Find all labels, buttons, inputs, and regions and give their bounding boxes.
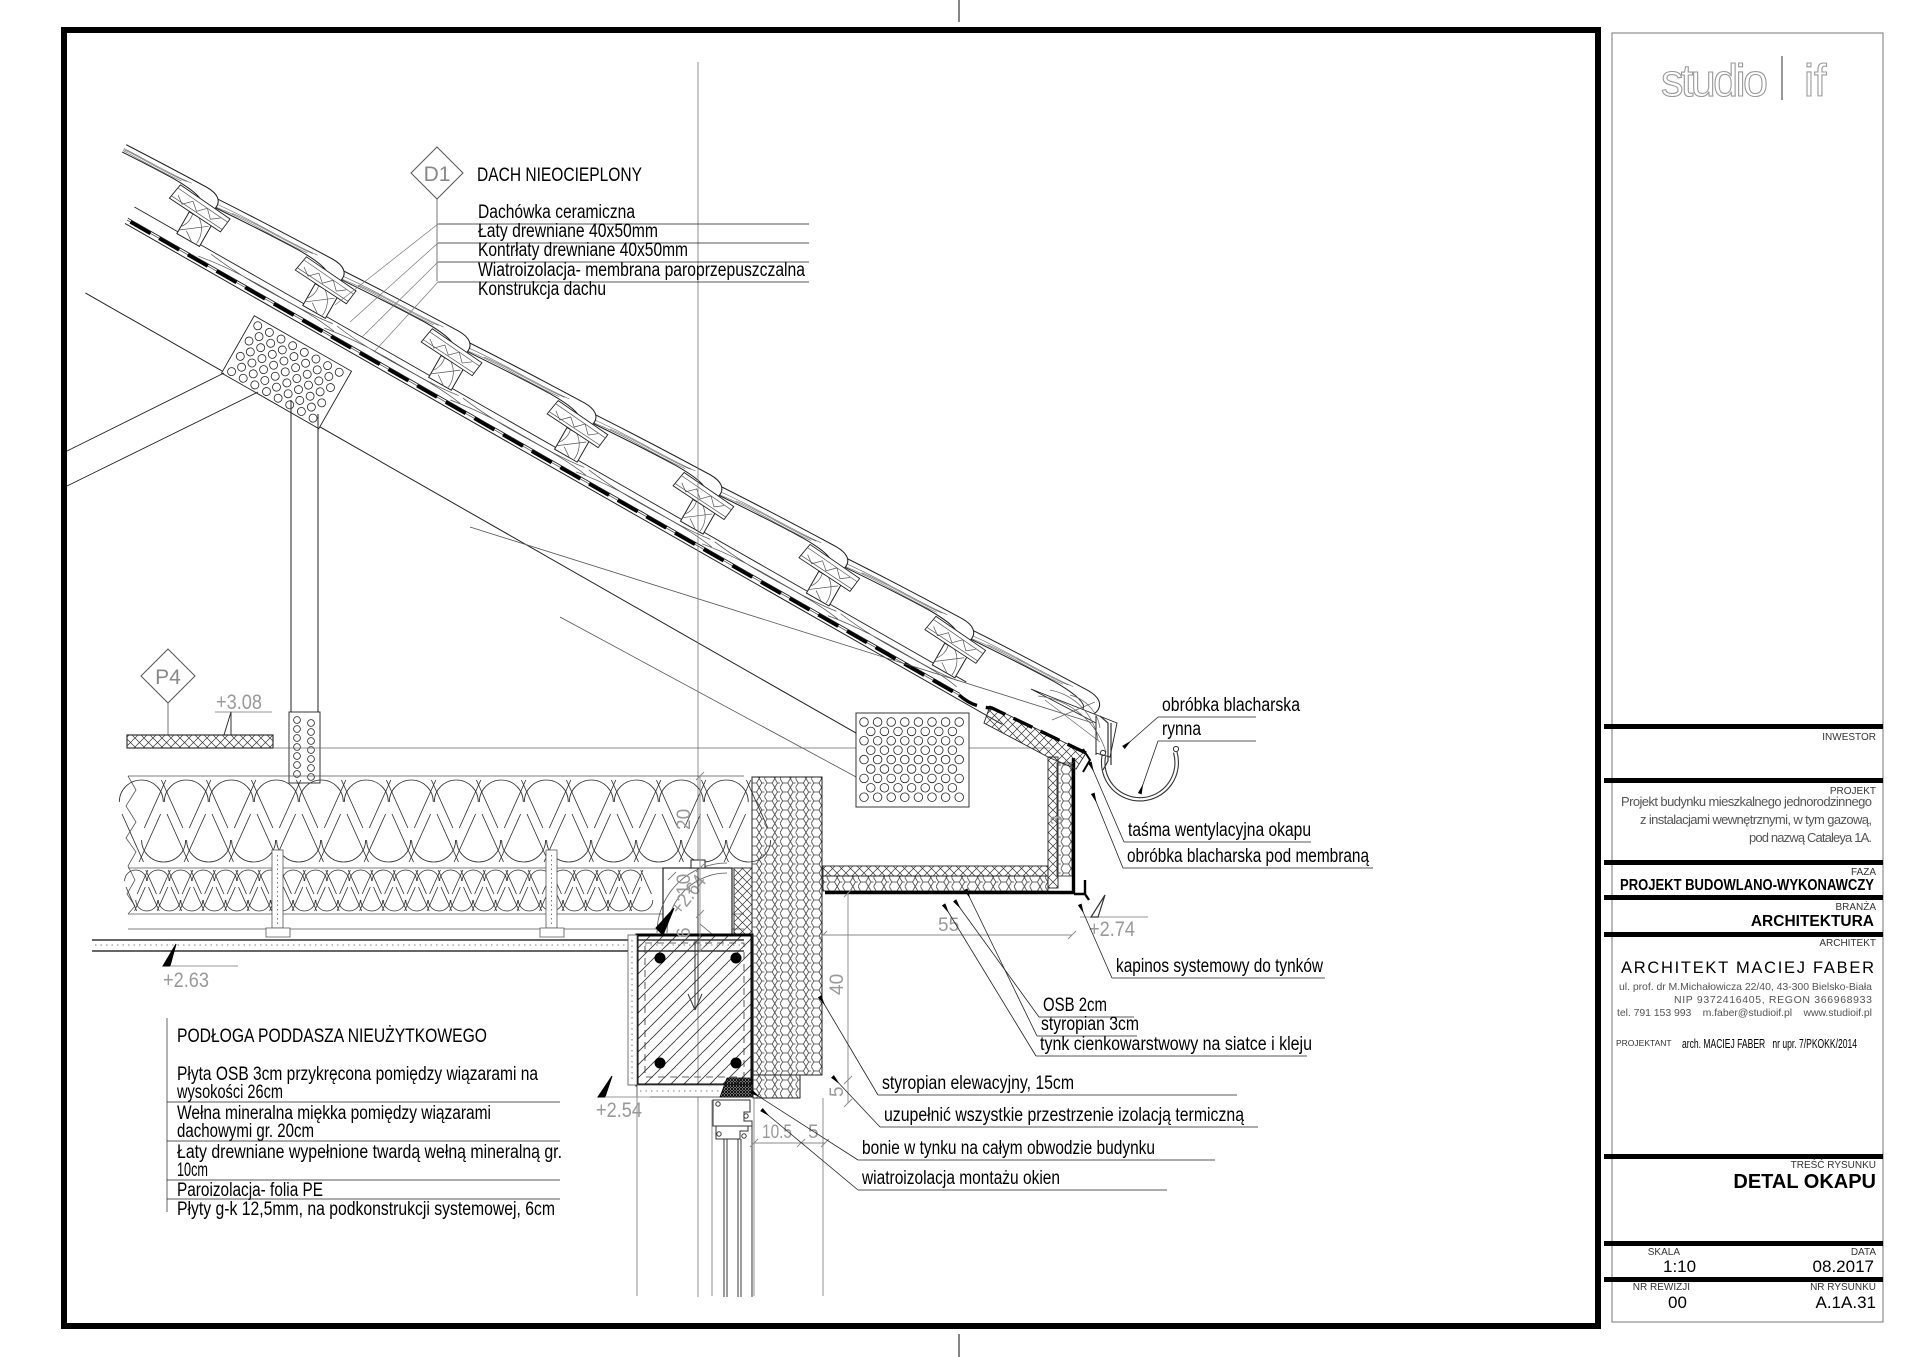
svg-text:kapinos systemowy do tynków: kapinos systemowy do tynków xyxy=(1116,956,1323,977)
svg-text:55: 55 xyxy=(938,915,959,936)
svg-text:Łaty drewniane wypełnione twar: Łaty drewniane wypełnione twardą wełną m… xyxy=(177,1142,562,1163)
svg-text:5: 5 xyxy=(808,1122,819,1143)
svg-text:DACH NIEOCIEPLONY: DACH NIEOCIEPLONY xyxy=(477,165,642,186)
svg-text:10.5: 10.5 xyxy=(762,1122,792,1143)
svg-text:tynk cienkowarstwowy na siatce: tynk cienkowarstwowy na siatce i kleju xyxy=(1040,1034,1312,1055)
svg-text:Łaty drewniane 40x50mm: Łaty drewniane 40x50mm xyxy=(478,221,658,242)
svg-text:dachowymi gr. 20cm: dachowymi gr. 20cm xyxy=(177,1121,314,1142)
svg-text:08.2017: 08.2017 xyxy=(1813,1257,1874,1276)
svg-text:BRANŻA: BRANŻA xyxy=(1835,900,1876,913)
svg-text:ul. prof. dr M.Michałowicza 22: ul. prof. dr M.Michałowicza 22/40, 43-30… xyxy=(1619,981,1872,993)
svg-text:Wiatroizolacja- membrana parop: Wiatroizolacja- membrana paroprzepuszcza… xyxy=(478,260,805,281)
svg-text:5: 5 xyxy=(827,1086,848,1097)
svg-text:tel. 791 153 993 m.faber@st: tel. 791 153 993 m.faber@studioif.pl www… xyxy=(1617,1007,1872,1019)
svg-text:pod nazwą Cataleya 1A.: pod nazwą Cataleya 1A. xyxy=(1749,830,1872,845)
svg-text:if: if xyxy=(1804,55,1827,106)
svg-text:DETAL OKAPU: DETAL OKAPU xyxy=(1733,1171,1876,1193)
svg-text:1:10: 1:10 xyxy=(1663,1257,1696,1276)
svg-text:NR RYSUNKU: NR RYSUNKU xyxy=(1810,1282,1876,1293)
svg-text:TREŚĆ RYSUNKU: TREŚĆ RYSUNKU xyxy=(1791,1158,1876,1171)
svg-text:obróbka blacharska: obróbka blacharska xyxy=(1162,695,1300,716)
svg-text:A.1A.31: A.1A.31 xyxy=(1816,1293,1877,1312)
svg-text:styropian elewacyjny, 15cm: styropian elewacyjny, 15cm xyxy=(882,1073,1074,1094)
svg-text:Projekt budynku mieszkalnego j: Projekt budynku mieszkalnego jednorodzin… xyxy=(1621,794,1872,809)
svg-text:20: 20 xyxy=(674,809,695,830)
svg-text:obróbka blacharska pod membran: obróbka blacharska pod membraną xyxy=(1127,846,1369,867)
svg-text:INWESTOR: INWESTOR xyxy=(1822,732,1876,743)
svg-text:Paroizolacja- folia PE: Paroizolacja- folia PE xyxy=(177,1180,323,1201)
svg-text:PODŁOGA PODDASZA NIEUŻYTKOWEGO: PODŁOGA PODDASZA NIEUŻYTKOWEGO xyxy=(177,1026,487,1047)
svg-text:rynna: rynna xyxy=(1162,719,1201,740)
svg-text:D1: D1 xyxy=(424,163,451,186)
svg-text:+2.63: +2.63 xyxy=(163,969,209,992)
svg-text:styropian 3cm: styropian 3cm xyxy=(1041,1014,1139,1035)
svg-text:uzupełnić wszystkie przestrzen: uzupełnić wszystkie przestrzenie izolacj… xyxy=(884,1105,1244,1126)
svg-text:wysokości 26cm: wysokości 26cm xyxy=(176,1082,283,1103)
svg-text:ARCHITEKTURA: ARCHITEKTURA xyxy=(1751,913,1874,930)
svg-text:arch. MACIEJ FABER nr upr. 7: arch. MACIEJ FABER nr upr. 7/PKOKK/2014 xyxy=(1682,1036,1857,1051)
svg-text:PROJEKTANT: PROJEKTANT xyxy=(1616,1038,1672,1048)
svg-text:P4: P4 xyxy=(155,666,181,689)
svg-text:Dachówka ceramiczna: Dachówka ceramiczna xyxy=(478,202,635,223)
svg-text:ARCHITEKT MACIEJ FABER: ARCHITEKT MACIEJ FABER xyxy=(1621,959,1874,977)
svg-text:Konstrukcja dachu: Konstrukcja dachu xyxy=(478,279,606,300)
svg-text:+3.08: +3.08 xyxy=(216,691,262,714)
svg-text:+2.74: +2.74 xyxy=(1089,918,1135,941)
svg-text:NR REWIZJI: NR REWIZJI xyxy=(1633,1282,1690,1293)
svg-text:Płyty g-k 12,5mm, na podkonstr: Płyty g-k 12,5mm, na podkonstrukcji syst… xyxy=(177,1199,555,1220)
svg-text:NIP 9372416405, REGON 36696893: NIP 9372416405, REGON 366968933 xyxy=(1674,994,1872,1006)
svg-text:wiatroizolacja montażu okien: wiatroizolacja montażu okien xyxy=(861,1168,1060,1189)
svg-text:3: 3 xyxy=(1047,816,1066,825)
svg-text:OSB 2cm: OSB 2cm xyxy=(1043,995,1107,1016)
svg-text:bonie w tynku na całym obwodzi: bonie w tynku na całym obwodzie budynku xyxy=(862,1138,1155,1159)
svg-text:10: 10 xyxy=(674,874,695,895)
svg-text:PROJEKT BUDOWLANO-WYKONAWCZY: PROJEKT BUDOWLANO-WYKONAWCZY xyxy=(1620,877,1875,894)
svg-text:10cm: 10cm xyxy=(177,1160,208,1181)
svg-text:taśma wentylacyjna okapu: taśma wentylacyjna okapu xyxy=(1128,820,1311,841)
svg-text:z instalacjami wewnętrznymi, w: z instalacjami wewnętrznymi, w tym gazow… xyxy=(1640,812,1872,827)
svg-text:40: 40 xyxy=(827,974,848,995)
svg-text:ARCHITEKT: ARCHITEKT xyxy=(1819,938,1876,949)
svg-text:00: 00 xyxy=(1668,1293,1687,1312)
svg-text:Kontrłaty drewniane 40x50mm: Kontrłaty drewniane 40x50mm xyxy=(478,240,688,261)
svg-text:studio: studio xyxy=(1661,55,1768,106)
svg-text:6: 6 xyxy=(674,927,695,938)
svg-text:+2.54: +2.54 xyxy=(596,1099,642,1122)
